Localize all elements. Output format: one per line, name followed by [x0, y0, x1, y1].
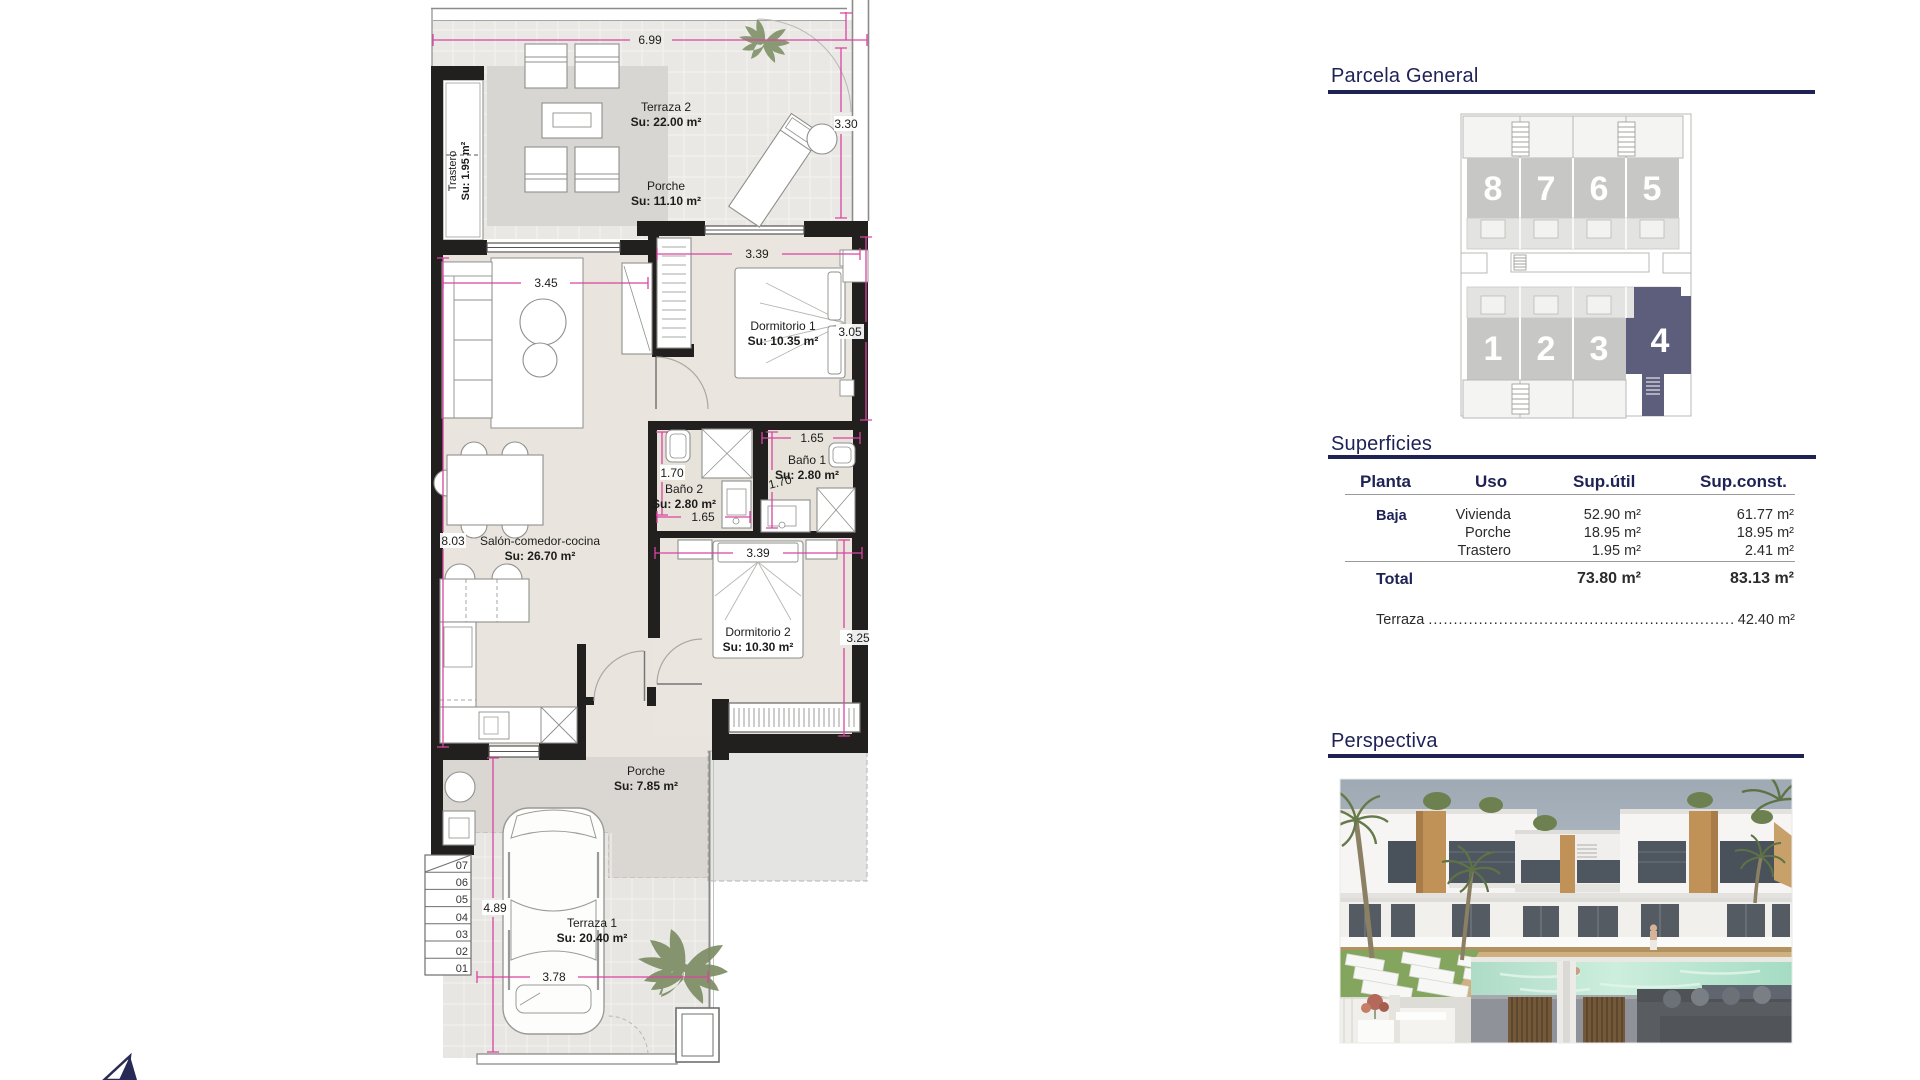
svg-text:Porche: Porche — [647, 179, 685, 193]
svg-text:05: 05 — [456, 894, 468, 906]
svg-text:Baño 1: Baño 1 — [788, 453, 826, 467]
svg-text:03: 03 — [456, 929, 468, 941]
svg-text:2: 2 — [1537, 330, 1556, 368]
svg-text:1.70: 1.70 — [660, 466, 684, 480]
svg-text:8: 8 — [1484, 170, 1503, 208]
svg-text:Dormitorio 2: Dormitorio 2 — [725, 625, 791, 639]
svg-text:Dormitorio 1: Dormitorio 1 — [750, 319, 816, 333]
svg-text:Su: 22.00 m²: Su: 22.00 m² — [631, 115, 702, 129]
svg-text:3.25: 3.25 — [846, 631, 870, 645]
svg-text:3: 3 — [1590, 330, 1609, 368]
svg-text:Su: 2.80 m²: Su: 2.80 m² — [652, 497, 716, 511]
svg-text:8.03: 8.03 — [441, 534, 465, 548]
svg-text:Su: 7.85 m²: Su: 7.85 m² — [614, 779, 678, 793]
svg-text:4: 4 — [1651, 322, 1670, 360]
svg-text:Porche: Porche — [627, 764, 665, 778]
svg-text:3.78: 3.78 — [542, 970, 566, 984]
svg-text:6: 6 — [1590, 170, 1609, 208]
svg-text:Su: 10.30 m²: Su: 10.30 m² — [723, 640, 794, 654]
svg-text:3.05: 3.05 — [838, 325, 862, 339]
svg-text:07: 07 — [456, 860, 468, 872]
svg-text:1.65: 1.65 — [800, 431, 824, 445]
svg-text:1: 1 — [1484, 330, 1503, 368]
svg-text:Trastero: Trastero — [447, 151, 459, 192]
svg-text:Su: 26.70 m²: Su: 26.70 m² — [505, 549, 576, 563]
svg-text:Su: 10.35 m²: Su: 10.35 m² — [748, 334, 819, 348]
svg-text:3.39: 3.39 — [745, 247, 769, 261]
svg-text:Su: 2.80 m²: Su: 2.80 m² — [775, 468, 839, 482]
svg-text:6.99: 6.99 — [638, 33, 662, 47]
svg-text:3.30: 3.30 — [834, 117, 858, 131]
svg-text:04: 04 — [456, 912, 468, 924]
svg-text:3.39: 3.39 — [746, 546, 770, 560]
svg-text:Terraza 1: Terraza 1 — [567, 916, 617, 930]
svg-text:5: 5 — [1643, 170, 1662, 208]
svg-text:Su: 11.10 m²: Su: 11.10 m² — [631, 194, 701, 208]
svg-text:7: 7 — [1537, 170, 1556, 208]
svg-text:Baño 2: Baño 2 — [665, 482, 703, 496]
svg-text:Salón-comedor-cocina: Salón-comedor-cocina — [480, 534, 600, 548]
svg-text:01: 01 — [456, 963, 468, 975]
svg-text:06: 06 — [456, 877, 468, 889]
svg-text:1.65: 1.65 — [691, 510, 715, 524]
svg-text:02: 02 — [456, 946, 468, 958]
svg-text:3.45: 3.45 — [534, 276, 558, 290]
svg-text:Su: 20.40 m²: Su: 20.40 m² — [557, 931, 628, 945]
svg-text:Su: 1.95 m²: Su: 1.95 m² — [460, 141, 472, 200]
svg-text:4.89: 4.89 — [483, 901, 507, 915]
svg-text:Terraza 2: Terraza 2 — [641, 100, 691, 114]
